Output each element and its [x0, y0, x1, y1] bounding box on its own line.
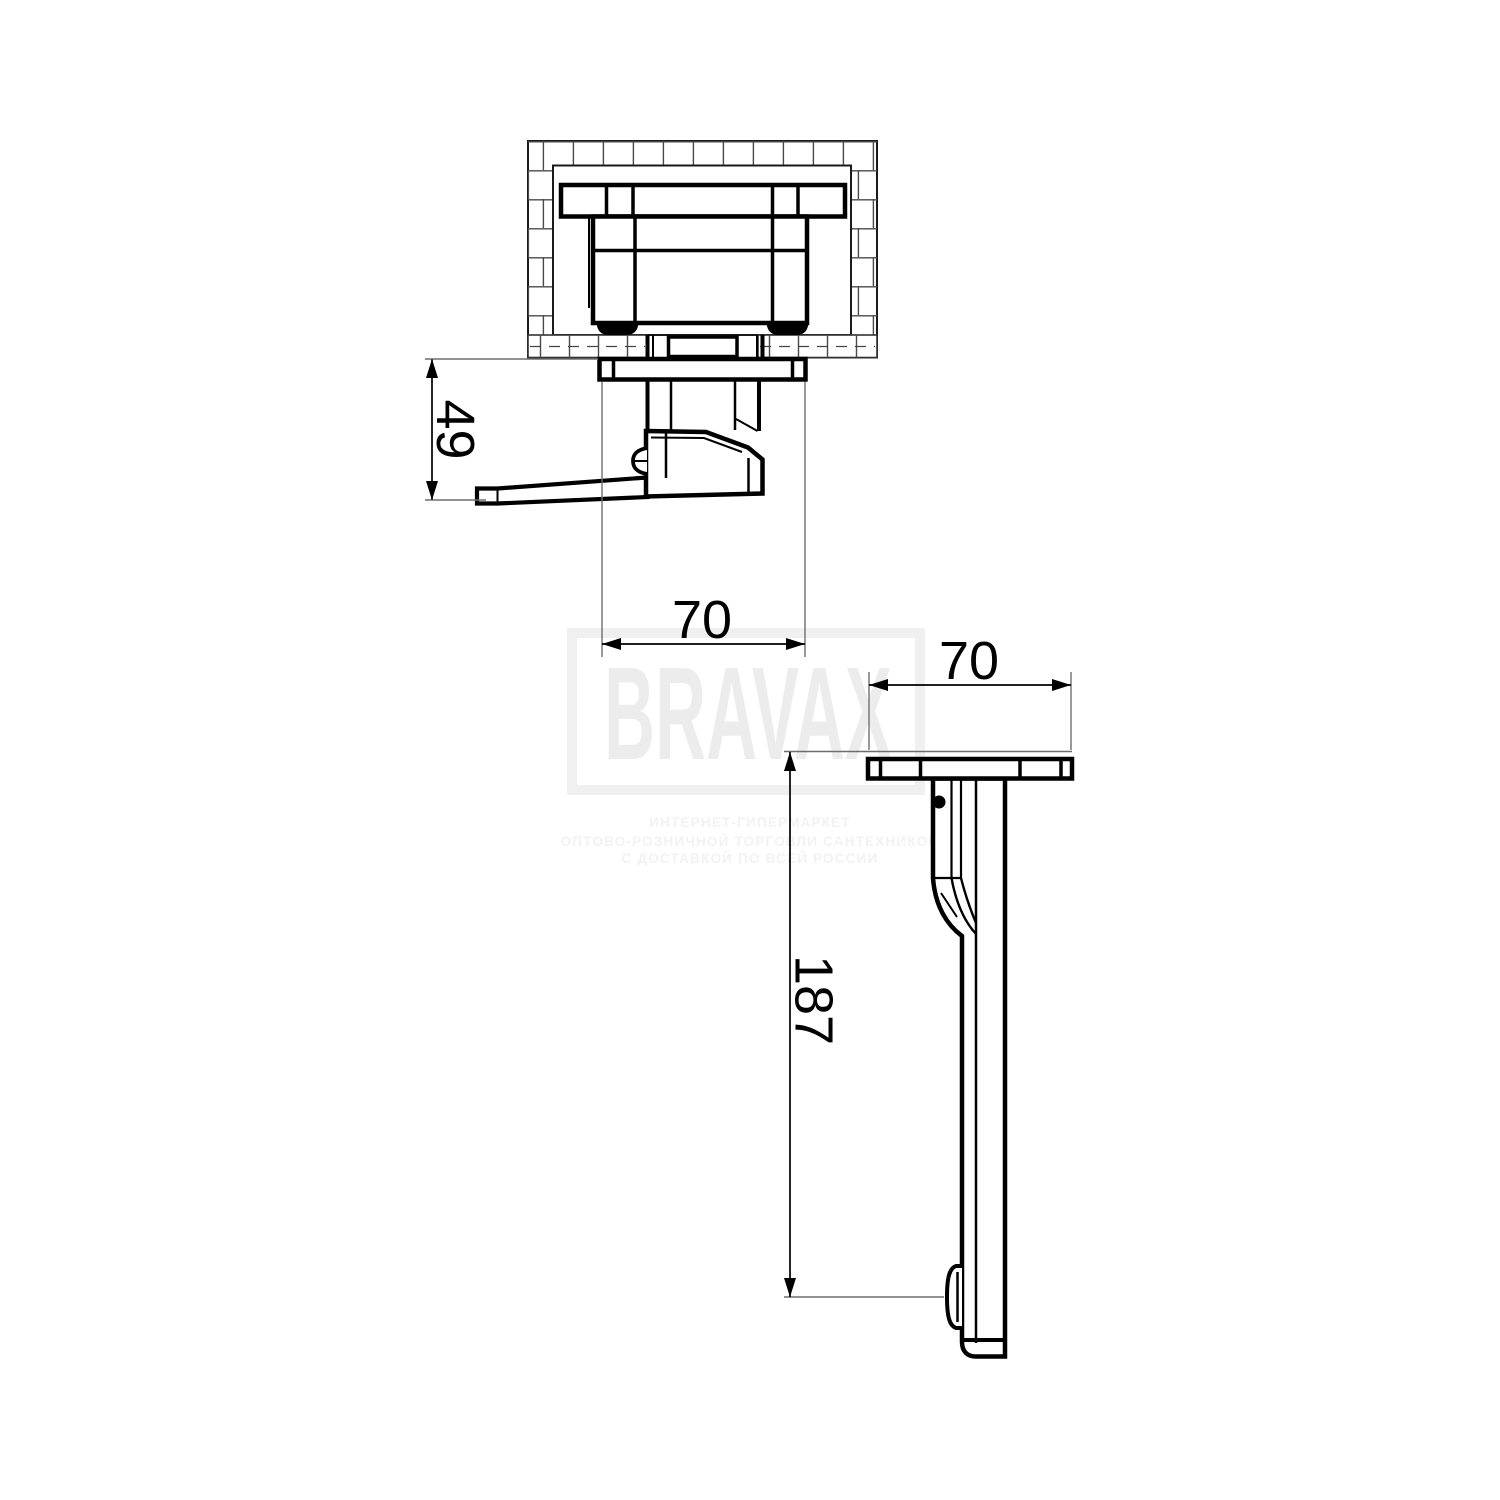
dim-70r-label: 70 — [939, 631, 999, 691]
valve-stem — [648, 380, 760, 432]
dim-187-label: 187 — [784, 955, 844, 1045]
drawing-canvas: BRAVAX ИНТЕРНЕТ-ГИПЕРМАРКЕТ ОПТОВО-РОЗНИ… — [0, 0, 1500, 1500]
dim-49-label: 49 — [425, 399, 485, 459]
watermark-tagline-line2: ОПТОВО-РОЗНИЧНОЙ ТОРГОВЛИ САНТЕХНИКОЙ — [561, 834, 940, 849]
valve-flange — [561, 185, 845, 217]
dim-70l-label: 70 — [672, 590, 732, 650]
watermark-brand: BRAVAX — [604, 640, 892, 787]
lever-handle — [477, 431, 763, 504]
valve-cartridge — [593, 217, 807, 324]
stem-diagonal — [736, 419, 758, 431]
set-screw-dot — [933, 796, 946, 809]
aerator-bump — [947, 1266, 962, 1328]
spout-body — [933, 779, 1006, 1357]
wall-section-view: 49 70 — [425, 141, 877, 657]
spout-outline — [933, 779, 1005, 1357]
escutcheon-plate — [600, 359, 806, 380]
mounting-plate — [868, 759, 1072, 779]
handle-body — [646, 431, 763, 497]
dimension-escutcheon-width: 70 — [602, 382, 805, 658]
watermark-tagline-line1: ИНТЕРНЕТ-ГИПЕРМАРКЕТ — [649, 815, 851, 830]
stem-inner-lines — [671, 380, 735, 431]
escutcheon — [600, 359, 806, 380]
dimension-plate-width: 70 — [869, 631, 1071, 750]
dimension-depth: 49 — [425, 359, 598, 500]
watermark-tagline-line3: С ДОСТАВКОЙ ПО ВСЕЙ РОССИИ — [622, 851, 879, 866]
watermark: BRAVAX ИНТЕРНЕТ-ГИПЕРМАРКЕТ ОПТОВО-РОЗНИ… — [561, 633, 940, 866]
handle-lever — [477, 478, 648, 504]
spout-top-plate — [868, 759, 1072, 779]
technical-drawing: BRAVAX ИНТЕРНЕТ-ГИПЕРМАРКЕТ ОПТОВО-РОЗНИ… — [0, 0, 1500, 1500]
